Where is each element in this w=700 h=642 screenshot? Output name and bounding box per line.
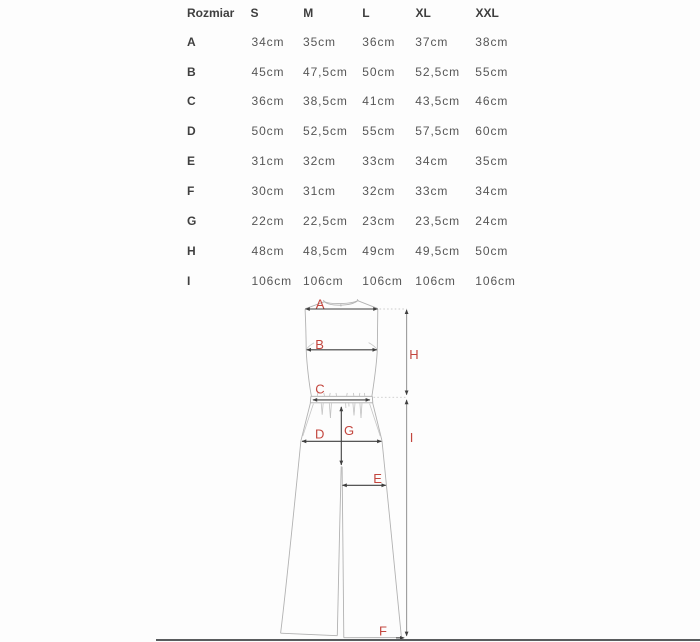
- svg-text:B: B: [315, 337, 324, 352]
- svg-text:D: D: [315, 426, 324, 441]
- svg-text:A: A: [316, 297, 325, 312]
- svg-text:G: G: [344, 423, 354, 438]
- svg-text:H: H: [409, 347, 418, 362]
- svg-text:F: F: [379, 624, 387, 639]
- svg-text:E: E: [373, 471, 382, 486]
- svg-text:C: C: [315, 381, 324, 396]
- svg-text:I: I: [410, 430, 414, 445]
